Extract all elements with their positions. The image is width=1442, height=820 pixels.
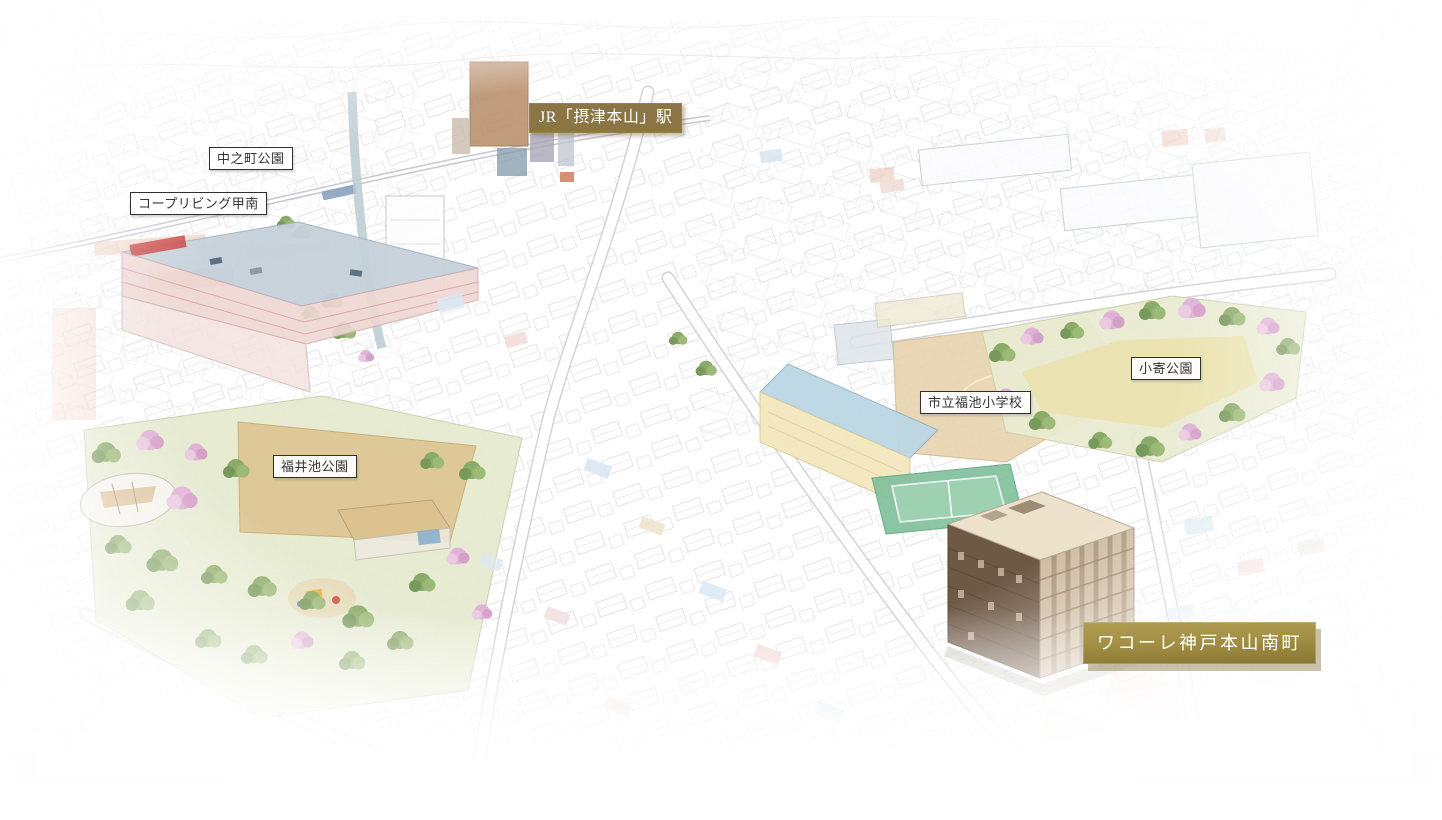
aerial-illustration [0, 0, 1442, 820]
location-aerial-map: JR「摂津本山」駅 中之町公園 コープリビング甲南 小寄公園 市立福池小学校 福… [0, 0, 1442, 820]
map-label-nakanocho-park: 中之町公園 [209, 147, 293, 170]
map-label-fukuike-elementary: 市立福池小学校 [920, 391, 1031, 414]
map-label-coop-living-konan: コープリビング甲南 [130, 192, 267, 215]
property-name-badge: ワコーレ神戸本山南町 [1083, 622, 1316, 664]
map-label-fukuiike-park: 福井池公園 [273, 455, 357, 478]
station-badge: JR「摂津本山」駅 [529, 103, 682, 133]
map-label-koyori-park: 小寄公園 [1131, 357, 1201, 380]
edge-fade [0, 0, 1442, 820]
